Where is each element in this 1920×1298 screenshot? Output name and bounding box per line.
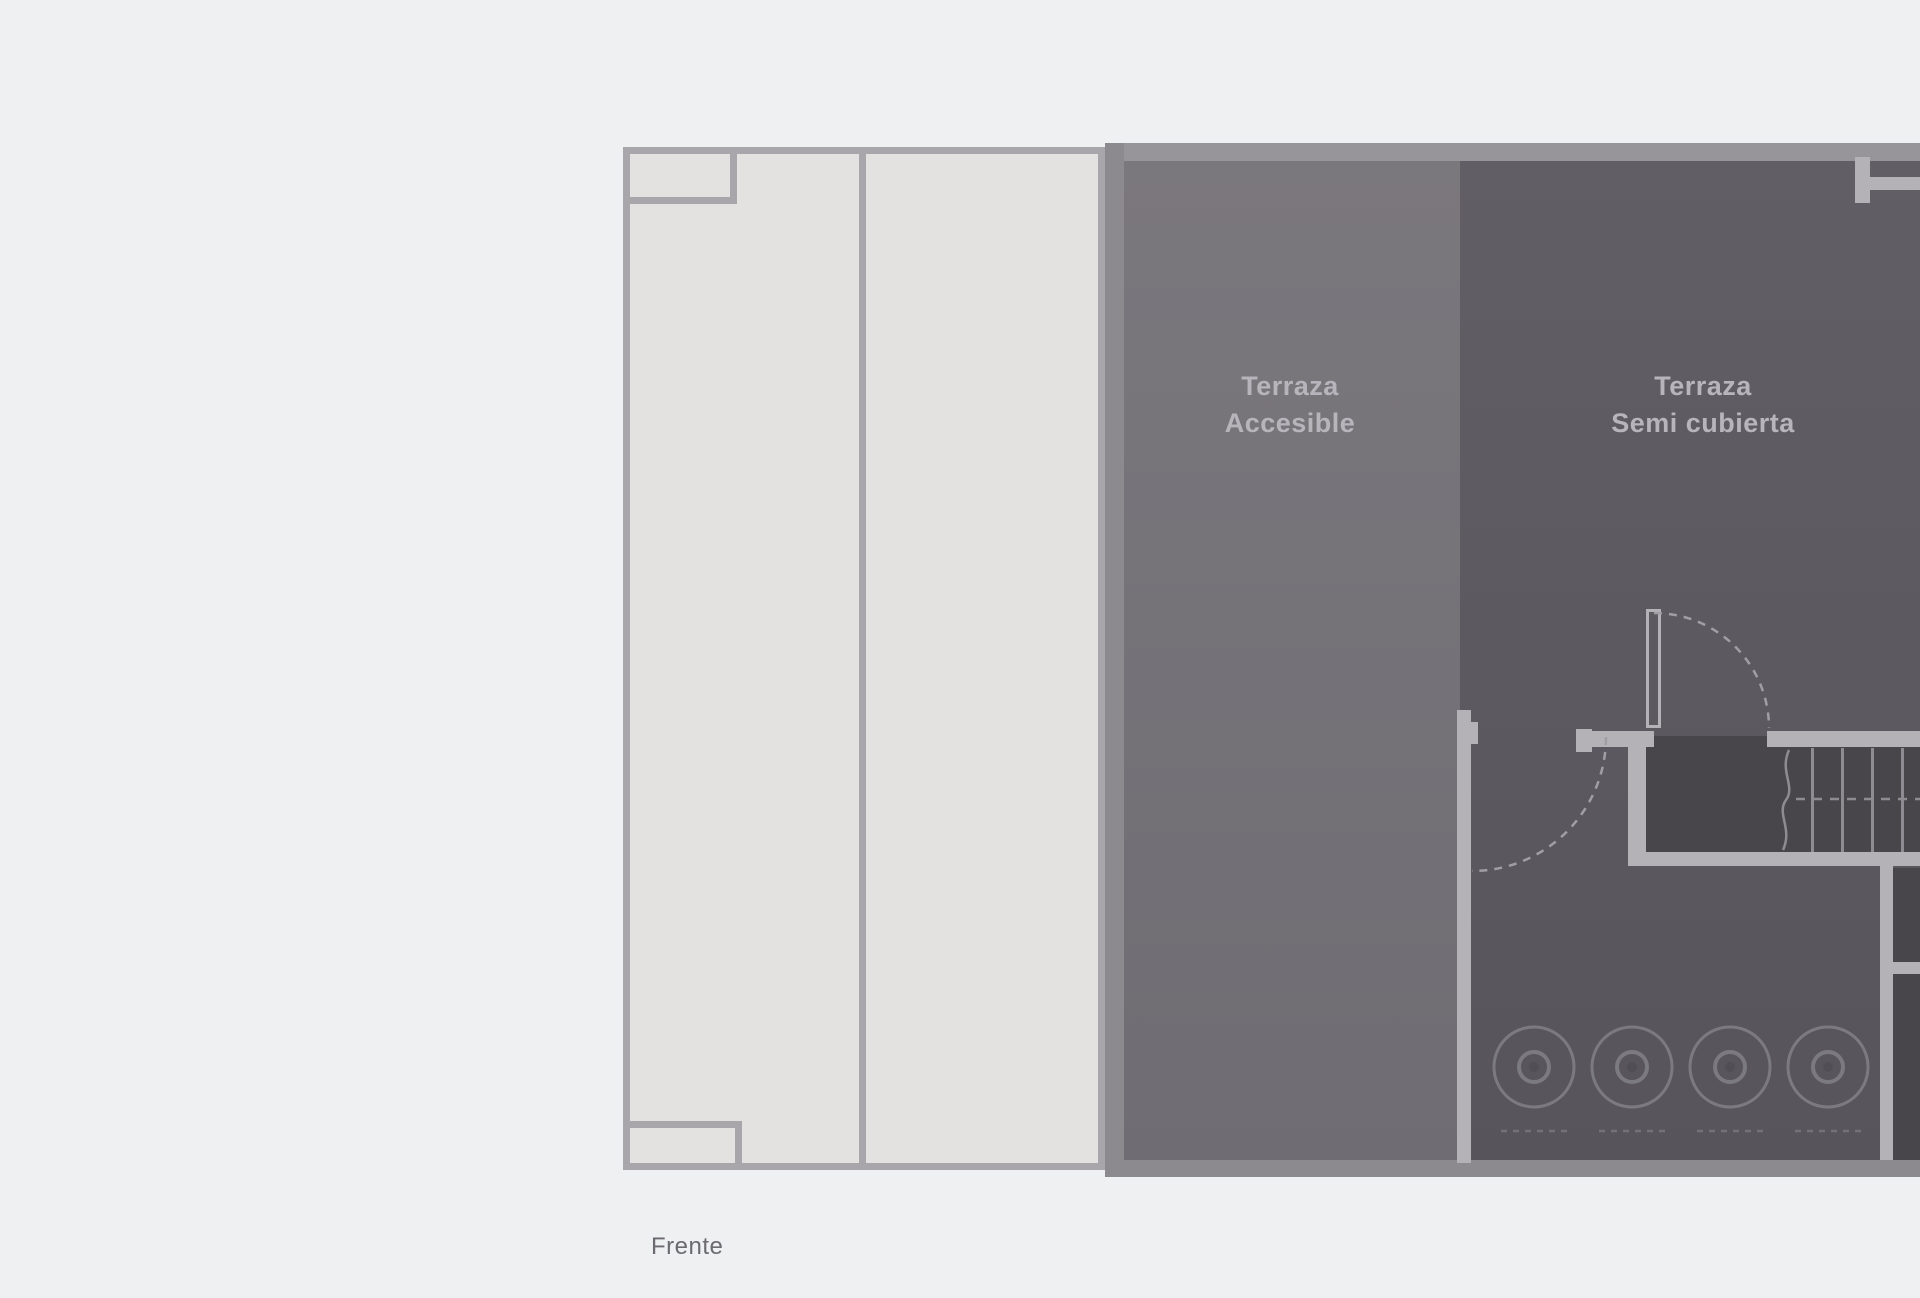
label-terraza-accesible-line2: Accesible [1140, 405, 1440, 442]
patio-divider-wall [859, 147, 866, 1170]
label-terraza-semi-cubierta-line2: Semi cubierta [1553, 405, 1853, 442]
patio-bottom-notch-right-line [735, 1121, 742, 1170]
right-edge-wall-strip [1880, 866, 1893, 1160]
stair-bottom-wall [1628, 852, 1920, 866]
label-terraza-semi-cubierta-line1: Terraza [1553, 368, 1853, 405]
stairwell-void [1646, 747, 1784, 852]
door-hinge-block [1457, 722, 1478, 744]
room-terraza-semi-cubierta [1460, 161, 1920, 1160]
patio-top-notch-right-line [730, 147, 737, 204]
label-terraza-accesible-line1: Terraza [1140, 368, 1440, 405]
floor-plan-canvas: Terraza Accesible Terraza Semi cubierta … [0, 0, 1920, 1298]
patio-bottom-notch-top-line [623, 1121, 742, 1128]
right-edge-wall-band [1880, 962, 1920, 974]
label-frente: Frente [651, 1233, 723, 1261]
duct-notch-left-stub [1855, 157, 1870, 203]
stair-doorway-gap [1654, 736, 1767, 747]
stair-top-wall-right [1767, 731, 1920, 747]
label-terraza-accesible: Terraza Accesible [1140, 368, 1440, 442]
patio-top-notch-bottom-line [623, 197, 737, 204]
terrace-divider-wall [1457, 710, 1471, 1163]
door-leaf-stair [1646, 609, 1661, 728]
patio-right-wall [1098, 147, 1105, 1170]
terrace-left-wall [1105, 143, 1124, 1177]
right-edge-shaft-lower [1893, 974, 1920, 1160]
stair-flight-area [1784, 747, 1920, 852]
right-edge-shaft-upper [1893, 868, 1920, 962]
patio-left-wall [623, 147, 630, 1170]
label-terraza-semi-cubierta: Terraza Semi cubierta [1553, 368, 1853, 442]
terrace-top-wall [1105, 143, 1920, 161]
duct-notch-bottom-bar [1870, 177, 1920, 190]
room-terraza-accesible [1124, 161, 1460, 1160]
terrace-bottom-wall [1105, 1160, 1920, 1177]
stair-left-wall [1628, 747, 1646, 853]
stair-top-wall-left [1592, 731, 1654, 747]
stair-wall-end-cap [1576, 729, 1592, 752]
